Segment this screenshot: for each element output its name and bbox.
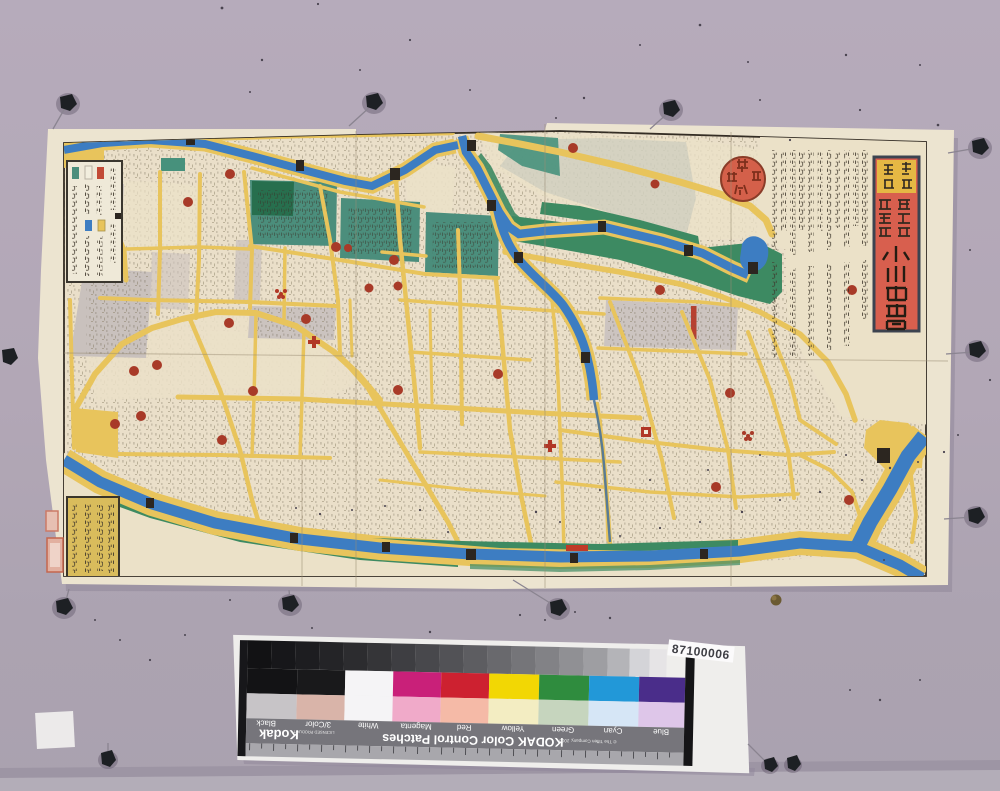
svg-text:Kodak: Kodak <box>258 726 299 742</box>
svg-text:Cyan: Cyan <box>604 726 623 735</box>
svg-text:Green: Green <box>552 725 574 734</box>
svg-text:© The Tiffen Company, 2000: © The Tiffen Company, 2000 <box>559 738 617 745</box>
svg-text:Blue: Blue <box>652 727 669 736</box>
svg-text:White: White <box>357 721 378 730</box>
svg-text:Black: Black <box>255 718 276 727</box>
svg-text:Magenta: Magenta <box>400 722 432 732</box>
svg-text:Yellow: Yellow <box>501 724 524 734</box>
svg-text:3/Color: 3/Color <box>305 720 331 730</box>
svg-text:LICENSED PRODUCT: LICENSED PRODUCT <box>293 729 335 735</box>
svg-text:Red: Red <box>457 723 472 732</box>
